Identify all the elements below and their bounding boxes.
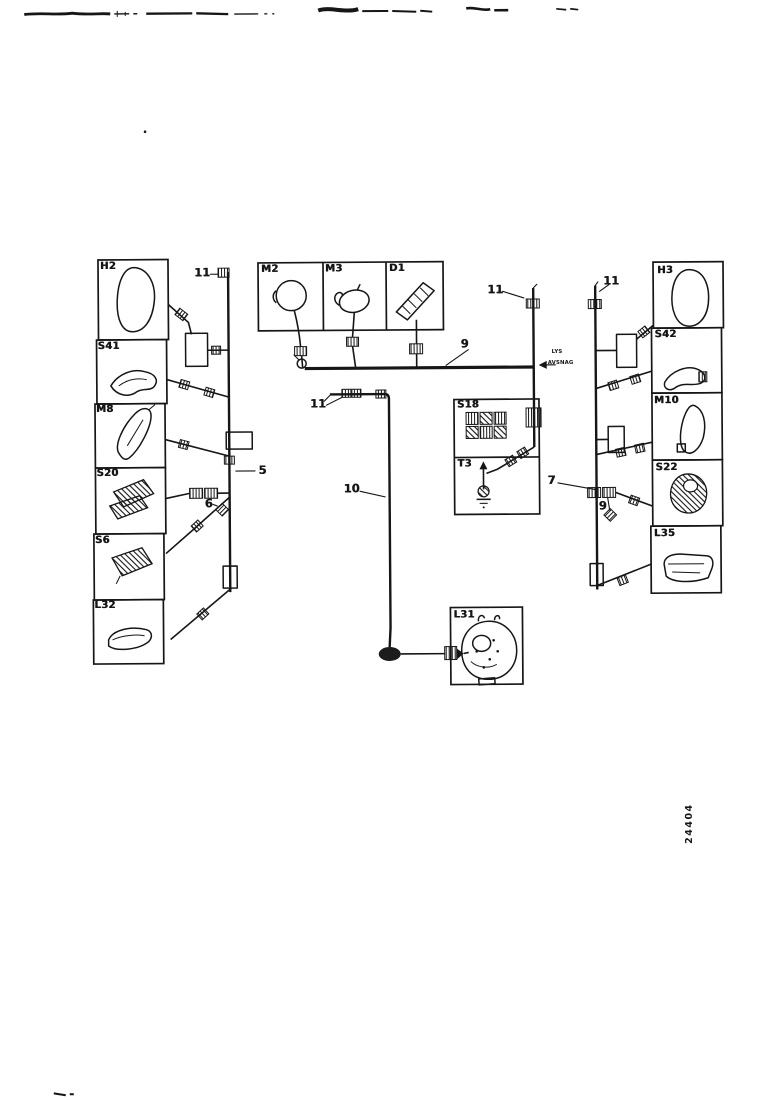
component-label-m3: M3 (325, 263, 343, 274)
horn-icon (461, 615, 516, 685)
scanned-wiring-diagram-page: H2 S41 M8 S20 S6 L32 M2 M3 D1 S18 T3 L31… (0, 0, 778, 1100)
wiring-diagram-canvas (0, 0, 778, 1100)
cross-reference-note-line1: LYS (552, 349, 563, 355)
wire-callout-11-left-top: 11 (194, 265, 210, 279)
left-harness-wiring (164, 268, 254, 640)
horn-icon (337, 287, 371, 315)
wire-callout-9-right: 9 (599, 498, 607, 512)
lamp-icon (664, 554, 713, 582)
mirror-glass-icon (117, 267, 155, 331)
wire-callout-10: 10 (344, 481, 360, 495)
component-label-d1: D1 (389, 263, 405, 274)
main-bus-wire (294, 353, 535, 369)
connector-block-icon (466, 412, 506, 438)
component-label-l35: L35 (654, 528, 675, 539)
grommet-symbol (379, 647, 401, 661)
component-label-s20: S20 (96, 468, 118, 479)
connector-symbol (218, 268, 229, 277)
component-label-s41: S41 (98, 341, 120, 352)
wire-callout-6: 6 (205, 496, 213, 510)
ground-terminal-icon (476, 461, 490, 508)
component-label-l31: L31 (453, 609, 474, 620)
component-label-m2: M2 (261, 264, 279, 275)
component-label-t3: T3 (457, 458, 471, 469)
relay-symbol (185, 333, 207, 366)
component-label-h3: H3 (657, 265, 673, 276)
switch-icon (110, 480, 154, 519)
striped-device-icon (396, 283, 434, 320)
cross-reference-note-line2: AVSNAG (548, 360, 574, 366)
component-label-s42: S42 (654, 329, 676, 340)
component-label-s22: S22 (655, 462, 677, 473)
wire-callout-11-right-top: 11 (603, 273, 619, 287)
component-label-l32: L32 (94, 600, 115, 611)
wire-callout-5: 5 (258, 463, 266, 477)
component-label-s18: S18 (457, 399, 479, 410)
right-component-boxes (649, 262, 725, 594)
switch-icon (670, 474, 706, 513)
component-label-m10: M10 (654, 395, 679, 406)
relay-symbol (617, 334, 637, 367)
wire-callout-9-bus: 9 (461, 336, 469, 350)
switch-icon (112, 548, 152, 584)
wire-callout-11-center-top: 11 (487, 282, 503, 296)
wire-callout-11-center: 11 (310, 396, 326, 410)
component-label-m8: M8 (96, 404, 114, 415)
component-label-h2: H2 (100, 261, 116, 272)
top-row-wire-drops (294, 310, 422, 369)
scan-artifact-marks (24, 7, 586, 1095)
connector-symbol (216, 503, 229, 516)
connector-pair (190, 488, 203, 498)
center-right-vertical-wire (485, 284, 541, 473)
figure-number: 24404 (684, 803, 695, 844)
callout-leader-lines (210, 271, 611, 506)
motor-icon (680, 405, 705, 453)
wire-callout-7: 7 (547, 473, 555, 487)
wiring-diagram: H2 S41 M8 S20 S6 L32 M2 M3 D1 S18 T3 L31… (0, 0, 778, 1100)
component-label-s6: S6 (95, 535, 110, 546)
right-harness-wiring (586, 281, 655, 589)
motor-icon (276, 281, 306, 311)
center-drop-wire (324, 388, 464, 661)
switch-lever-icon (111, 371, 157, 396)
mirror-glass-icon (672, 269, 709, 326)
